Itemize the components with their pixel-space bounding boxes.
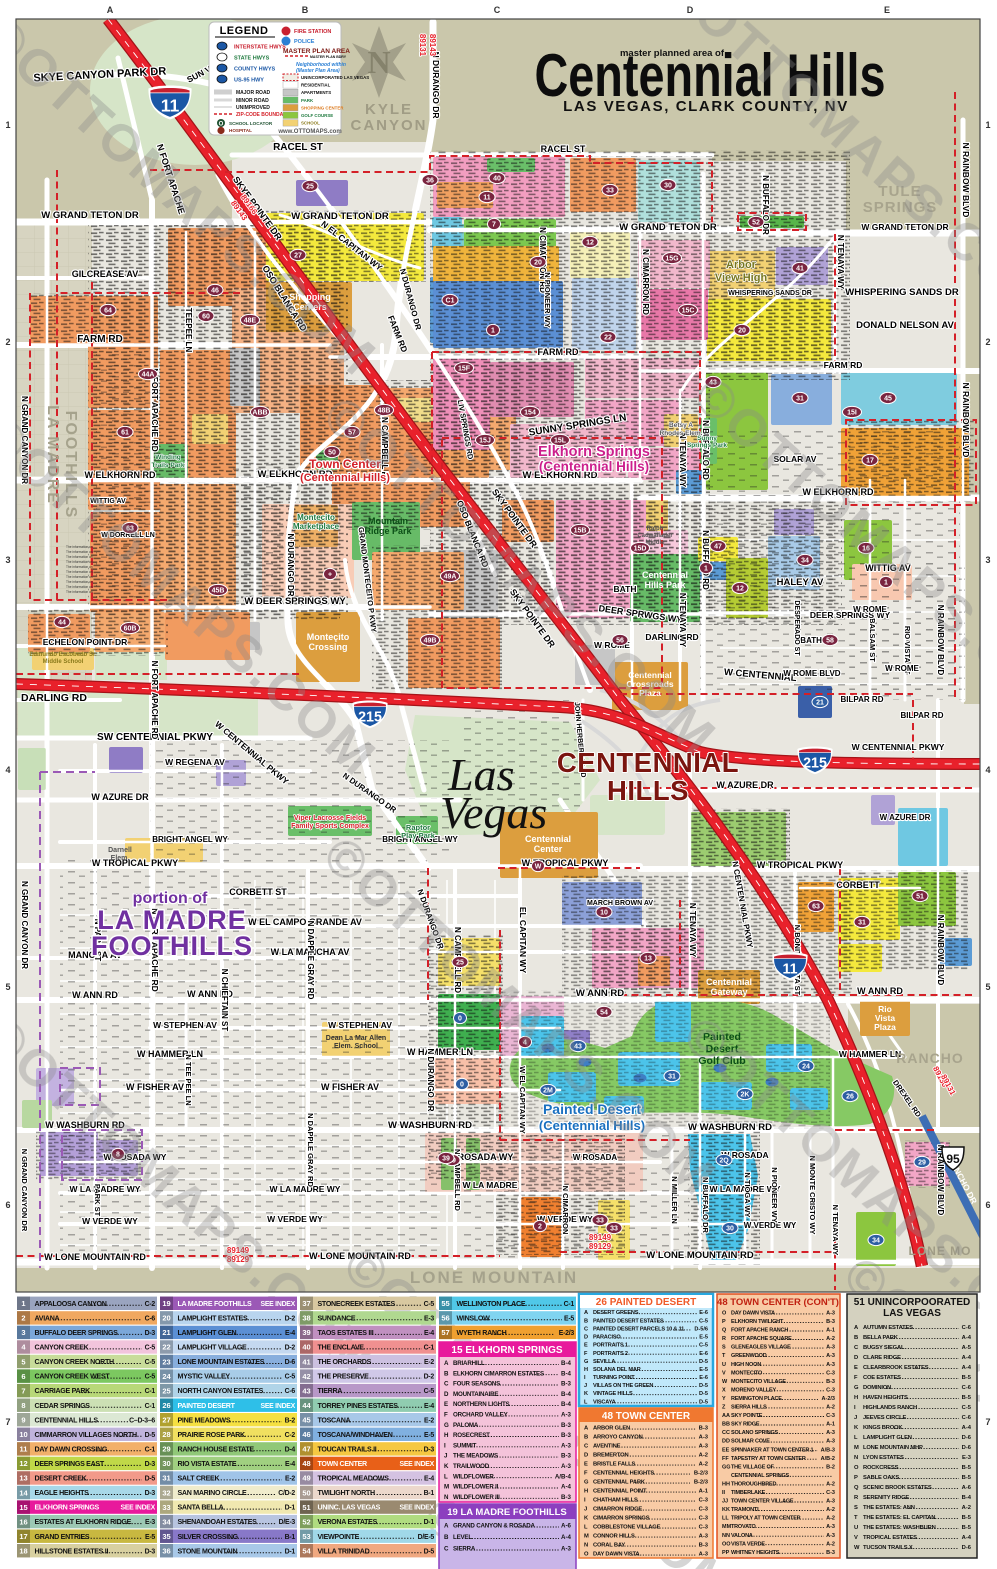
svg-text:Montecito: Montecito bbox=[297, 513, 335, 522]
svg-text:2: 2 bbox=[985, 337, 990, 347]
svg-text:Winding: Winding bbox=[155, 454, 181, 461]
svg-text:A-5: A-5 bbox=[962, 1345, 972, 1351]
svg-text:II: II bbox=[722, 1490, 726, 1496]
svg-text:15I: 15I bbox=[847, 410, 857, 417]
svg-text:N CIMARRON RD: N CIMARRON RD bbox=[641, 249, 650, 315]
svg-text:A-4: A-4 bbox=[962, 1425, 972, 1431]
svg-text:C-3: C-3 bbox=[699, 1507, 709, 1513]
svg-text:48 TOWN CENTER (CON'T): 48 TOWN CENTER (CON'T) bbox=[717, 1297, 839, 1308]
svg-text:O: O bbox=[219, 122, 224, 128]
svg-text:The information on: The information on bbox=[66, 580, 93, 584]
svg-text:4: 4 bbox=[985, 765, 990, 775]
svg-text:Centennial: Centennial bbox=[642, 570, 688, 580]
svg-text:E-4: E-4 bbox=[285, 1461, 295, 1468]
svg-text:HAVEN HEIGHTS: HAVEN HEIGHTS bbox=[863, 1395, 908, 1401]
svg-text:HALEY AV: HALEY AV bbox=[777, 577, 824, 588]
svg-text:G: G bbox=[584, 1480, 589, 1486]
svg-text:D-5/6: D-5/6 bbox=[694, 1327, 708, 1333]
svg-text:The information on: The information on bbox=[66, 560, 93, 564]
svg-text:B-5: B-5 bbox=[962, 1515, 972, 1521]
svg-text:Center: Center bbox=[534, 844, 563, 854]
svg-text:THE ENCLAVE: THE ENCLAVE bbox=[318, 1344, 365, 1352]
svg-text:37: 37 bbox=[302, 1299, 310, 1308]
svg-text:C-3: C-3 bbox=[699, 1498, 709, 1504]
svg-text:LL: LL bbox=[722, 1516, 729, 1522]
svg-text:MOUNTAINAIRE: MOUNTAINAIRE bbox=[453, 1391, 498, 1398]
svg-text:N GRAND CANYON DR: N GRAND CANYON DR bbox=[20, 1149, 29, 1232]
svg-text:A-3: A-3 bbox=[561, 1546, 572, 1553]
svg-text:CONNOR HILLS: CONNOR HILLS bbox=[593, 1534, 635, 1540]
svg-text:THE PRESERVE: THE PRESERVE bbox=[318, 1373, 370, 1381]
svg-text:A-3: A-3 bbox=[826, 1430, 835, 1436]
svg-text:52: 52 bbox=[752, 220, 760, 227]
svg-text:DESERT CREEK: DESERT CREEK bbox=[35, 1475, 88, 1483]
svg-text:D-2: D-2 bbox=[424, 1374, 435, 1381]
svg-text:TROPICAL MEADOWS: TROPICAL MEADOWS bbox=[318, 1475, 390, 1483]
svg-text:A-3: A-3 bbox=[826, 1524, 835, 1530]
svg-text:MASTER PLAN BDRY: MASTER PLAN BDRY bbox=[310, 55, 347, 59]
svg-text:DARLING RD: DARLING RD bbox=[645, 632, 698, 642]
svg-text:W ANN RD: W ANN RD bbox=[857, 986, 903, 996]
svg-text:JJ: JJ bbox=[722, 1499, 728, 1505]
svg-text:F: F bbox=[854, 1375, 858, 1381]
svg-text:C-3: C-3 bbox=[826, 1490, 835, 1496]
svg-text:34: 34 bbox=[162, 1517, 171, 1526]
svg-text:KK: KK bbox=[722, 1507, 730, 1513]
svg-text:D-6: D-6 bbox=[962, 1435, 972, 1441]
svg-text:CARRIAGE PARK: CARRIAGE PARK bbox=[35, 1387, 92, 1395]
svg-text:B: B bbox=[444, 1534, 449, 1541]
svg-text:C: C bbox=[584, 1327, 588, 1333]
svg-text:RESIDENTIAL: RESIDENTIAL bbox=[301, 83, 331, 88]
svg-text:47: 47 bbox=[714, 544, 722, 551]
svg-text:CANYON: CANYON bbox=[350, 117, 427, 134]
svg-text:21: 21 bbox=[816, 700, 824, 707]
svg-text:E: E bbox=[584, 1462, 588, 1468]
svg-text:C-1: C-1 bbox=[145, 1446, 156, 1453]
svg-text:N: N bbox=[367, 44, 390, 80]
svg-text:B-5: B-5 bbox=[962, 1525, 972, 1531]
svg-text:W LA MADRE: W LA MADRE bbox=[463, 1180, 518, 1190]
svg-text:24: 24 bbox=[162, 1372, 171, 1381]
svg-text:30: 30 bbox=[664, 183, 672, 190]
svg-text:Edmundo Escobedo Sr.: Edmundo Escobedo Sr. bbox=[29, 652, 97, 658]
svg-text:RACEL ST: RACEL ST bbox=[541, 144, 586, 154]
svg-text:LAMPLIGHT GLEN: LAMPLIGHT GLEN bbox=[178, 1329, 237, 1337]
svg-text:TURNING POINT: TURNING POINT bbox=[593, 1375, 635, 1381]
svg-text:W ROME: W ROME bbox=[885, 664, 919, 673]
svg-text:OO: OO bbox=[722, 1541, 731, 1547]
svg-text:J: J bbox=[584, 1507, 587, 1513]
svg-text:Ridge Park: Ridge Park bbox=[364, 526, 412, 536]
svg-text:E-5: E-5 bbox=[564, 1315, 574, 1322]
svg-text:MAJOR ROAD: MAJOR ROAD bbox=[236, 90, 271, 96]
svg-text:Hills Park: Hills Park bbox=[644, 580, 686, 590]
svg-text:FOOTHILLS: FOOTHILLS bbox=[91, 931, 253, 961]
svg-text:48 TOWN CENTER: 48 TOWN CENTER bbox=[602, 1411, 691, 1422]
svg-text:GG: GG bbox=[722, 1464, 731, 1470]
svg-text:1: 1 bbox=[5, 120, 10, 130]
svg-text:15F: 15F bbox=[458, 366, 471, 373]
svg-text:TIMBERLAKE: TIMBERLAKE bbox=[731, 1490, 766, 1496]
svg-text:PINE MEADOWS: PINE MEADOWS bbox=[178, 1416, 231, 1424]
svg-text:E-2: E-2 bbox=[424, 1359, 434, 1366]
svg-text:EAGLE HEIGHTS: EAGLE HEIGHTS bbox=[35, 1489, 90, 1497]
svg-text:48E: 48E bbox=[244, 318, 257, 325]
svg-text:A-2: A-2 bbox=[962, 1505, 971, 1511]
svg-text:33: 33 bbox=[606, 188, 614, 195]
svg-text:N: N bbox=[854, 1455, 858, 1461]
svg-text:A-2: A-2 bbox=[826, 1336, 835, 1342]
svg-text:60B: 60B bbox=[124, 626, 137, 633]
svg-text:MONTECITO VILLAGE: MONTECITO VILLAGE bbox=[731, 1379, 786, 1385]
svg-text:HIGH NOON: HIGH NOON bbox=[731, 1362, 761, 1368]
svg-text:W WASHBURN RD: W WASHBURN RD bbox=[388, 1120, 472, 1131]
svg-text:CORAL BAY: CORAL BAY bbox=[593, 1543, 625, 1549]
svg-text:FOUR SEASONS: FOUR SEASONS bbox=[453, 1381, 500, 1388]
svg-text:19: 19 bbox=[162, 1299, 170, 1308]
svg-text:Play Park: Play Park bbox=[401, 831, 436, 840]
svg-text:27: 27 bbox=[294, 253, 302, 260]
svg-text:THOROUGHBRED: THOROUGHBRED bbox=[731, 1482, 776, 1488]
svg-text:UNINC. LAS VEGAS: UNINC. LAS VEGAS bbox=[318, 1504, 381, 1512]
svg-text:B: B bbox=[584, 1318, 588, 1324]
svg-text:D-3: D-3 bbox=[424, 1446, 435, 1453]
svg-text:APARTMENTS: APARTMENTS bbox=[301, 90, 331, 95]
svg-text:W FISHER AV: W FISHER AV bbox=[126, 1082, 184, 1092]
svg-text:C-5: C-5 bbox=[145, 1345, 156, 1352]
svg-text:39: 39 bbox=[302, 1328, 310, 1337]
svg-text:A-1: A-1 bbox=[826, 1422, 835, 1428]
svg-text:N FORT APACHE RD: N FORT APACHE RD bbox=[150, 661, 159, 740]
svg-text:FARM RD: FARM RD bbox=[538, 347, 579, 357]
svg-text:30: 30 bbox=[726, 1226, 734, 1233]
svg-text:W DEER SPRINGS WY: W DEER SPRINGS WY bbox=[244, 596, 346, 607]
svg-text:C-5: C-5 bbox=[424, 1301, 435, 1308]
svg-text:26: 26 bbox=[846, 1094, 854, 1101]
svg-text:W HAMMER LN: W HAMMER LN bbox=[407, 1047, 473, 1057]
svg-text:N RAINBOW BLVD: N RAINBOW BLVD bbox=[961, 383, 971, 458]
svg-text:C-1: C-1 bbox=[145, 1403, 156, 1410]
svg-text:B-4: B-4 bbox=[962, 1495, 972, 1501]
svg-text:A-2: A-2 bbox=[826, 1507, 835, 1513]
svg-text:D-5: D-5 bbox=[699, 1383, 708, 1389]
svg-text:The information on: The information on bbox=[66, 585, 93, 589]
svg-text:E-2/3: E-2/3 bbox=[559, 1330, 575, 1337]
svg-text:WHISPERING SANDS DR: WHISPERING SANDS DR bbox=[845, 287, 959, 298]
svg-text:TIERRA: TIERRA bbox=[318, 1387, 343, 1395]
svg-text:E-2: E-2 bbox=[424, 1417, 434, 1424]
svg-text:N PIONEER WY: N PIONEER WY bbox=[770, 1167, 779, 1222]
svg-text:B-3: B-3 bbox=[561, 1432, 572, 1439]
svg-text:Family Sports Complex: Family Sports Complex bbox=[291, 823, 369, 830]
svg-text:F: F bbox=[584, 1471, 588, 1477]
svg-text:W: W bbox=[535, 864, 542, 871]
svg-text:TOUCAN TRAILS II: TOUCAN TRAILS II bbox=[318, 1445, 377, 1453]
svg-text:53: 53 bbox=[302, 1532, 310, 1541]
svg-text:Trails Park: Trails Park bbox=[152, 462, 185, 469]
svg-text:A-6: A-6 bbox=[962, 1485, 972, 1491]
svg-text:O: O bbox=[854, 1465, 859, 1471]
svg-text:D/E-5: D/E-5 bbox=[418, 1534, 435, 1541]
svg-text:SALT CREEK: SALT CREEK bbox=[178, 1475, 221, 1483]
svg-text:BRIARHILL: BRIARHILL bbox=[453, 1360, 485, 1367]
svg-text:VALONA: VALONA bbox=[731, 1533, 753, 1539]
svg-text:A/B-3: A/B-3 bbox=[821, 1447, 835, 1453]
svg-text:13: 13 bbox=[644, 956, 652, 963]
svg-text:PARK ST: PARK ST bbox=[93, 1184, 102, 1217]
svg-text:C-5: C-5 bbox=[145, 1374, 156, 1381]
svg-text:64: 64 bbox=[104, 308, 112, 315]
svg-text:28: 28 bbox=[162, 1430, 170, 1439]
svg-text:A-4: A-4 bbox=[962, 1335, 972, 1341]
svg-text:D: D bbox=[584, 1453, 588, 1459]
svg-text:G: G bbox=[854, 1385, 859, 1391]
svg-text:CENTENNIAL: CENTENNIAL bbox=[557, 747, 739, 778]
svg-text:FIRE STATION: FIRE STATION bbox=[294, 29, 331, 35]
svg-text:LAMPLIGHT ESTATES: LAMPLIGHT ESTATES bbox=[178, 1314, 248, 1322]
svg-text:49: 49 bbox=[302, 1474, 310, 1483]
svg-text:5: 5 bbox=[21, 1357, 25, 1366]
svg-text:N: N bbox=[444, 1494, 449, 1501]
svg-text:WILDFLOWER II: WILDFLOWER II bbox=[453, 1484, 499, 1491]
svg-text:D: D bbox=[444, 1391, 449, 1398]
svg-text:54: 54 bbox=[302, 1547, 311, 1556]
svg-text:D-3: D-3 bbox=[145, 1548, 156, 1555]
svg-text:B: B bbox=[302, 5, 309, 15]
svg-text:C/D-2: C/D-2 bbox=[278, 1490, 295, 1497]
svg-text:11: 11 bbox=[483, 195, 491, 202]
svg-text:C-6: C-6 bbox=[962, 1385, 972, 1391]
svg-text:BUGSY SIEGAL: BUGSY SIEGAL bbox=[863, 1345, 905, 1351]
svg-text:A-3: A-3 bbox=[699, 1552, 709, 1558]
svg-text:N DURANGO DR: N DURANGO DR bbox=[286, 533, 295, 596]
svg-text:BILPAR RD: BILPAR RD bbox=[841, 695, 884, 704]
svg-text:H: H bbox=[584, 1367, 588, 1373]
svg-text:A: A bbox=[444, 1360, 449, 1367]
svg-text:SCHOOL LOCATOR: SCHOOL LOCATOR bbox=[229, 121, 273, 126]
svg-text:1: 1 bbox=[21, 1299, 25, 1308]
svg-text:36: 36 bbox=[426, 178, 434, 185]
svg-text:WINSLOW: WINSLOW bbox=[457, 1314, 491, 1322]
svg-text:CORBETT ST: CORBETT ST bbox=[229, 887, 287, 897]
svg-text:WELLINGTON PLACE: WELLINGTON PLACE bbox=[457, 1300, 526, 1308]
svg-text:0: 0 bbox=[460, 1082, 464, 1089]
svg-text:E-5: E-5 bbox=[424, 1432, 434, 1439]
svg-text:+: + bbox=[328, 572, 332, 579]
svg-text:C-1: C-1 bbox=[564, 1301, 575, 1308]
svg-text:19 LA MADRE FOOTHILLS: 19 LA MADRE FOOTHILLS bbox=[447, 1507, 566, 1518]
svg-text:TRIPOLY AT TOWN CENTER: TRIPOLY AT TOWN CENTER bbox=[731, 1516, 801, 1522]
svg-text:39: 39 bbox=[442, 1156, 450, 1163]
svg-text:W TROPICAL PKWY: W TROPICAL PKWY bbox=[92, 858, 178, 868]
svg-text:D-5: D-5 bbox=[699, 1359, 708, 1365]
svg-text:48: 48 bbox=[302, 1459, 310, 1468]
svg-text:C-1: C-1 bbox=[145, 1388, 156, 1395]
svg-text:A-2: A-2 bbox=[826, 1541, 835, 1547]
svg-text:BB: BB bbox=[722, 1422, 730, 1428]
svg-text:15: 15 bbox=[19, 1503, 27, 1512]
svg-text:W ROME BLVD: W ROME BLVD bbox=[783, 669, 840, 678]
svg-text:Y: Y bbox=[722, 1396, 726, 1402]
svg-text:MINOR ROAD: MINOR ROAD bbox=[236, 98, 269, 104]
svg-text:SIERRA: SIERRA bbox=[453, 1546, 476, 1553]
svg-text:8: 8 bbox=[21, 1401, 25, 1410]
svg-text:4: 4 bbox=[5, 765, 10, 775]
svg-text:GRAND CANYON & ROSADA: GRAND CANYON & ROSADA bbox=[453, 1523, 535, 1530]
svg-text:A-3: A-3 bbox=[826, 1311, 835, 1317]
svg-text:2M: 2M bbox=[543, 1088, 553, 1095]
svg-text:LA MADRE FOOTHILLS: LA MADRE FOOTHILLS bbox=[178, 1300, 253, 1308]
svg-text:PRAIRIE ROSE PARK: PRAIRIE ROSE PARK bbox=[178, 1431, 246, 1439]
svg-text:N BUFFALO RD: N BUFFALO RD bbox=[701, 530, 710, 590]
svg-text:E-4: E-4 bbox=[285, 1330, 295, 1337]
svg-text:P: P bbox=[722, 1319, 726, 1325]
svg-text:E: E bbox=[884, 5, 890, 15]
svg-text:W CENTENNIAL PKWY: W CENTENNIAL PKWY bbox=[852, 742, 945, 752]
svg-text:Marketplace: Marketplace bbox=[293, 522, 340, 531]
svg-text:60: 60 bbox=[202, 314, 210, 321]
svg-text:B-3: B-3 bbox=[561, 1453, 572, 1460]
svg-text:W LONE MOUNTAIN RD: W LONE MOUNTAIN RD bbox=[44, 1252, 146, 1262]
svg-text:SOLMAR COVE: SOLMAR COVE bbox=[731, 1439, 770, 1445]
svg-text:35: 35 bbox=[162, 1532, 170, 1541]
svg-text:Mountain: Mountain bbox=[368, 516, 408, 526]
svg-text:CIMMARRON VILLAGES NORTH: CIMMARRON VILLAGES NORTH bbox=[35, 1431, 138, 1439]
svg-text:W GRAND TETON DR: W GRAND TETON DR bbox=[619, 222, 717, 233]
svg-text:7: 7 bbox=[21, 1386, 25, 1395]
svg-text:POLICE: POLICE bbox=[294, 39, 315, 45]
svg-text:22: 22 bbox=[604, 335, 612, 342]
svg-text:C–D-3–6: C–D-3–6 bbox=[129, 1417, 155, 1424]
svg-text:TROVATO: TROVATO bbox=[731, 1524, 756, 1530]
svg-text:GRAND ENTRIES: GRAND ENTRIES bbox=[35, 1533, 90, 1541]
svg-text:57: 57 bbox=[441, 1328, 449, 1337]
svg-text:89143: 89143 bbox=[428, 34, 437, 57]
svg-text:15 ELKHORN SPRINGS: 15 ELKHORN SPRINGS bbox=[451, 1345, 562, 1356]
svg-text:CLARE RIDGE: CLARE RIDGE bbox=[863, 1355, 901, 1361]
svg-text:49A: 49A bbox=[444, 574, 457, 581]
svg-text:27: 27 bbox=[162, 1416, 170, 1425]
svg-text:33: 33 bbox=[162, 1503, 170, 1512]
svg-text:NN: NN bbox=[722, 1533, 730, 1539]
svg-text:B-3: B-3 bbox=[826, 1550, 835, 1556]
svg-text:34: 34 bbox=[801, 558, 809, 565]
svg-text:154: 154 bbox=[524, 410, 536, 417]
svg-text:46: 46 bbox=[302, 1430, 310, 1439]
svg-text:15G: 15G bbox=[665, 256, 679, 263]
svg-text:PP: PP bbox=[722, 1550, 730, 1556]
svg-text:BUFFALO DEER SPRINGS: BUFFALO DEER SPRINGS bbox=[35, 1329, 119, 1337]
svg-text:C: C bbox=[494, 5, 501, 15]
svg-text:HOSPITAL: HOSPITAL bbox=[229, 128, 252, 133]
svg-text:E-6: E-6 bbox=[699, 1351, 708, 1357]
svg-text:7: 7 bbox=[985, 1417, 990, 1427]
svg-text:D-5: D-5 bbox=[699, 1399, 708, 1405]
svg-text:E-6: E-6 bbox=[699, 1310, 708, 1316]
svg-text:H: H bbox=[854, 1395, 858, 1401]
svg-text:DONALD NELSON AV: DONALD NELSON AV bbox=[856, 320, 954, 331]
svg-text:SUMMIT: SUMMIT bbox=[453, 1442, 477, 1449]
svg-text:U: U bbox=[722, 1362, 726, 1368]
svg-text:E: E bbox=[444, 1401, 448, 1408]
svg-text:ROCKCRESS: ROCKCRESS bbox=[863, 1465, 899, 1471]
svg-text:3: 3 bbox=[21, 1328, 25, 1337]
svg-text:N GRAND CANYON DR: N GRAND CANYON DR bbox=[20, 881, 29, 969]
svg-text:SEE INDEX: SEE INDEX bbox=[260, 1301, 295, 1308]
svg-text:W HAMMER LN: W HAMMER LN bbox=[839, 1049, 901, 1059]
svg-text:C-5: C-5 bbox=[285, 1374, 296, 1381]
svg-text:A/B-2: A/B-2 bbox=[821, 1456, 835, 1462]
svg-text:N FORT APACHE RD: N FORT APACHE RD bbox=[150, 368, 160, 452]
svg-text:6: 6 bbox=[985, 1200, 990, 1210]
svg-text:A-6: A-6 bbox=[561, 1523, 572, 1530]
svg-text:C-5: C-5 bbox=[424, 1388, 435, 1395]
svg-text:US-95 HWY: US-95 HWY bbox=[234, 78, 264, 84]
svg-text:29: 29 bbox=[162, 1445, 170, 1454]
svg-text:BALSAM ST: BALSAM ST bbox=[868, 618, 877, 662]
svg-text:50: 50 bbox=[328, 450, 336, 457]
svg-text:MARCH BROWN AV: MARCH BROWN AV bbox=[587, 900, 653, 907]
svg-text:N DAPPLE GRAY RD: N DAPPLE GRAY RD bbox=[306, 1113, 315, 1187]
svg-text:PAINTED DESERT: PAINTED DESERT bbox=[178, 1402, 236, 1410]
svg-text:CANYON CREEK NORTH: CANYON CREEK NORTH bbox=[35, 1358, 115, 1366]
svg-text:U: U bbox=[854, 1525, 858, 1531]
svg-text:ELKHORN CIMARRON ESTATES: ELKHORN CIMARRON ESTATES bbox=[453, 1370, 544, 1377]
svg-text:SCENIC BROOK ESTATES: SCENIC BROOK ESTATES bbox=[863, 1485, 932, 1491]
svg-text:12: 12 bbox=[586, 240, 594, 247]
svg-text:17: 17 bbox=[19, 1532, 27, 1541]
svg-text:FORT APACHE SQUARE: FORT APACHE SQUARE bbox=[731, 1336, 792, 1342]
svg-text:W TROPICAL PKWY: W TROPICAL PKWY bbox=[757, 860, 843, 870]
svg-text:5: 5 bbox=[5, 982, 10, 992]
svg-text:B-2: B-2 bbox=[285, 1417, 296, 1424]
svg-text:6: 6 bbox=[21, 1372, 25, 1381]
svg-text:J: J bbox=[444, 1453, 448, 1460]
svg-text:W ROSADA: W ROSADA bbox=[573, 1153, 618, 1162]
svg-text:FARM RD: FARM RD bbox=[77, 334, 123, 345]
svg-text:18: 18 bbox=[19, 1547, 27, 1556]
svg-text:M: M bbox=[584, 1534, 589, 1540]
svg-text:A-4: A-4 bbox=[962, 1535, 972, 1541]
svg-text:41: 41 bbox=[302, 1357, 310, 1366]
svg-text:26: 26 bbox=[162, 1401, 170, 1410]
svg-text:E-6: E-6 bbox=[699, 1375, 708, 1381]
svg-text:25: 25 bbox=[306, 184, 314, 191]
svg-text:N CHIEFTAIN ST: N CHIEFTAIN ST bbox=[220, 969, 229, 1032]
svg-text:C-6: C-6 bbox=[285, 1388, 296, 1395]
svg-text:E-5: E-5 bbox=[145, 1534, 155, 1541]
svg-text:D: D bbox=[854, 1355, 858, 1361]
svg-text:DARLING RD: DARLING RD bbox=[21, 692, 87, 704]
svg-text:SEE INDEX: SEE INDEX bbox=[120, 1505, 155, 1512]
svg-text:SOLANA DEL MAR: SOLANA DEL MAR bbox=[593, 1367, 641, 1373]
svg-text:W AZURE DR: W AZURE DR bbox=[716, 780, 774, 790]
svg-text:26 PAINTED DESERT: 26 PAINTED DESERT bbox=[596, 1297, 696, 1308]
svg-text:E-4: E-4 bbox=[424, 1403, 434, 1410]
svg-text:B-3: B-3 bbox=[826, 1379, 835, 1385]
svg-text:B-3: B-3 bbox=[561, 1381, 572, 1388]
svg-text:LONE MOUNTAIN: LONE MOUNTAIN bbox=[410, 1268, 578, 1287]
svg-text:47: 47 bbox=[302, 1445, 310, 1454]
svg-text:B: B bbox=[584, 1435, 588, 1441]
svg-text:Centennial: Centennial bbox=[525, 834, 571, 844]
svg-text:N TENAYA WY: N TENAYA WY bbox=[678, 593, 687, 648]
svg-text:AVIANA: AVIANA bbox=[35, 1314, 60, 1322]
svg-text:3: 3 bbox=[985, 555, 990, 565]
svg-text:17: 17 bbox=[866, 458, 874, 465]
svg-text:15C: 15C bbox=[682, 308, 695, 315]
